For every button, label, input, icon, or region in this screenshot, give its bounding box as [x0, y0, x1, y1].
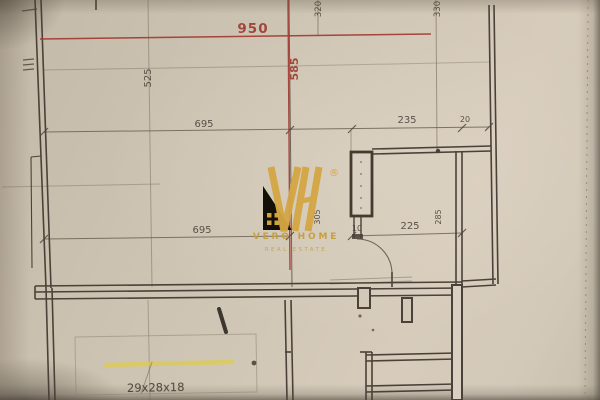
dim-interior-height: 585: [288, 58, 301, 81]
dimension-ticks: [22, 9, 493, 243]
dim-upper-room-width: 695: [194, 119, 213, 130]
paper-fold-line: [585, 0, 588, 400]
red-dimension-lines: [40, 0, 431, 270]
brand-tagline: REAL ESTATE: [265, 247, 327, 253]
wall-stub-left: [358, 288, 370, 308]
wall-stub-right: [402, 298, 412, 322]
floorplan-scan: 950 585 525 695 235 20 695 10 225 305 28…: [0, 0, 600, 400]
wall-junction-dot: [436, 149, 440, 153]
dim-overall-width: 950: [237, 21, 268, 37]
dim-shaft-offset: 10: [352, 224, 362, 233]
black-marker-stroke: [219, 309, 226, 332]
door-jamb: [352, 234, 363, 239]
brand-name: VERO HOME: [253, 232, 339, 242]
yellow-highlight-line: [106, 362, 232, 365]
dim-top-edge-left: 320: [314, 1, 324, 17]
dim-corridor-width: 225: [400, 221, 419, 232]
lower-right-wall: [452, 285, 462, 400]
registered-mark: ®: [329, 168, 339, 179]
vero-home-watermark: ® VERO HOME REAL ESTATE: [253, 167, 339, 253]
dim-top-edge-right: 330: [433, 1, 443, 17]
dim-gap-width: 20: [460, 115, 470, 124]
stair-note: 29x28x18: [127, 380, 185, 395]
floorplan-drawing: 950 585 525 695 235 20 695 10 225 305 28…: [0, 0, 600, 400]
dim-lower-room-width: 695: [192, 225, 211, 236]
pencil-dots: [252, 314, 375, 365]
dim-left-segment: 525: [143, 68, 154, 87]
dim-right-wall-height: 285: [434, 209, 443, 224]
dim-recess-width: 235: [397, 115, 416, 126]
